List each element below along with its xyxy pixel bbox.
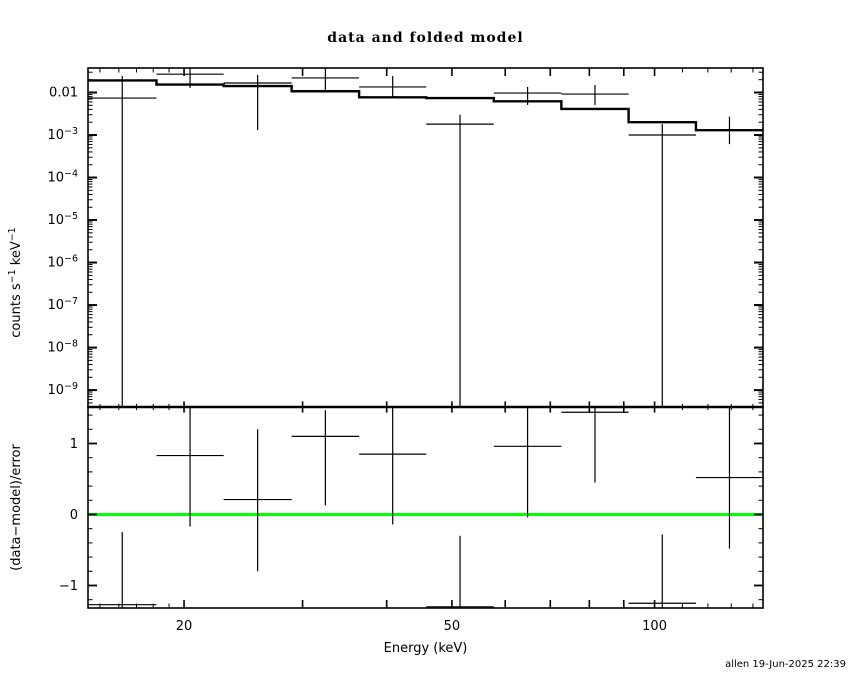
y-tick-label: 10−4 — [47, 169, 78, 186]
xspec-plot-page: data and folded model 20501000.0110−310−… — [0, 0, 850, 680]
y-tick-label: 1 — [70, 437, 78, 452]
y-tick-label: 0.01 — [49, 86, 78, 101]
y-axis-title-top: counts s−1 keV−1 — [7, 227, 24, 337]
x-tick-label: 100 — [642, 619, 667, 634]
y-tick-label: 10−6 — [47, 254, 78, 271]
y-tick-label: 10−8 — [47, 339, 78, 356]
x-tick-label: 20 — [176, 619, 193, 634]
y-axis-title-bottom: (data−model)/error — [9, 444, 24, 571]
y-tick-label: 0 — [70, 508, 78, 523]
timestamp-label: allen 19-Jun-2025 22:39 — [725, 659, 846, 670]
model-line — [88, 80, 763, 130]
x-tick-label: 50 — [444, 619, 461, 634]
y-tick-label: −1 — [59, 579, 78, 594]
x-axis-title: Energy (keV) — [384, 641, 468, 656]
y-tick-label: 10−7 — [47, 296, 78, 313]
y-tick-label: 10−3 — [47, 126, 78, 143]
y-tick-label: 10−5 — [47, 211, 78, 228]
y-tick-label: 10−9 — [47, 381, 78, 398]
spectrum-figure: 20501000.0110−310−410−510−610−710−810−91… — [0, 0, 850, 680]
